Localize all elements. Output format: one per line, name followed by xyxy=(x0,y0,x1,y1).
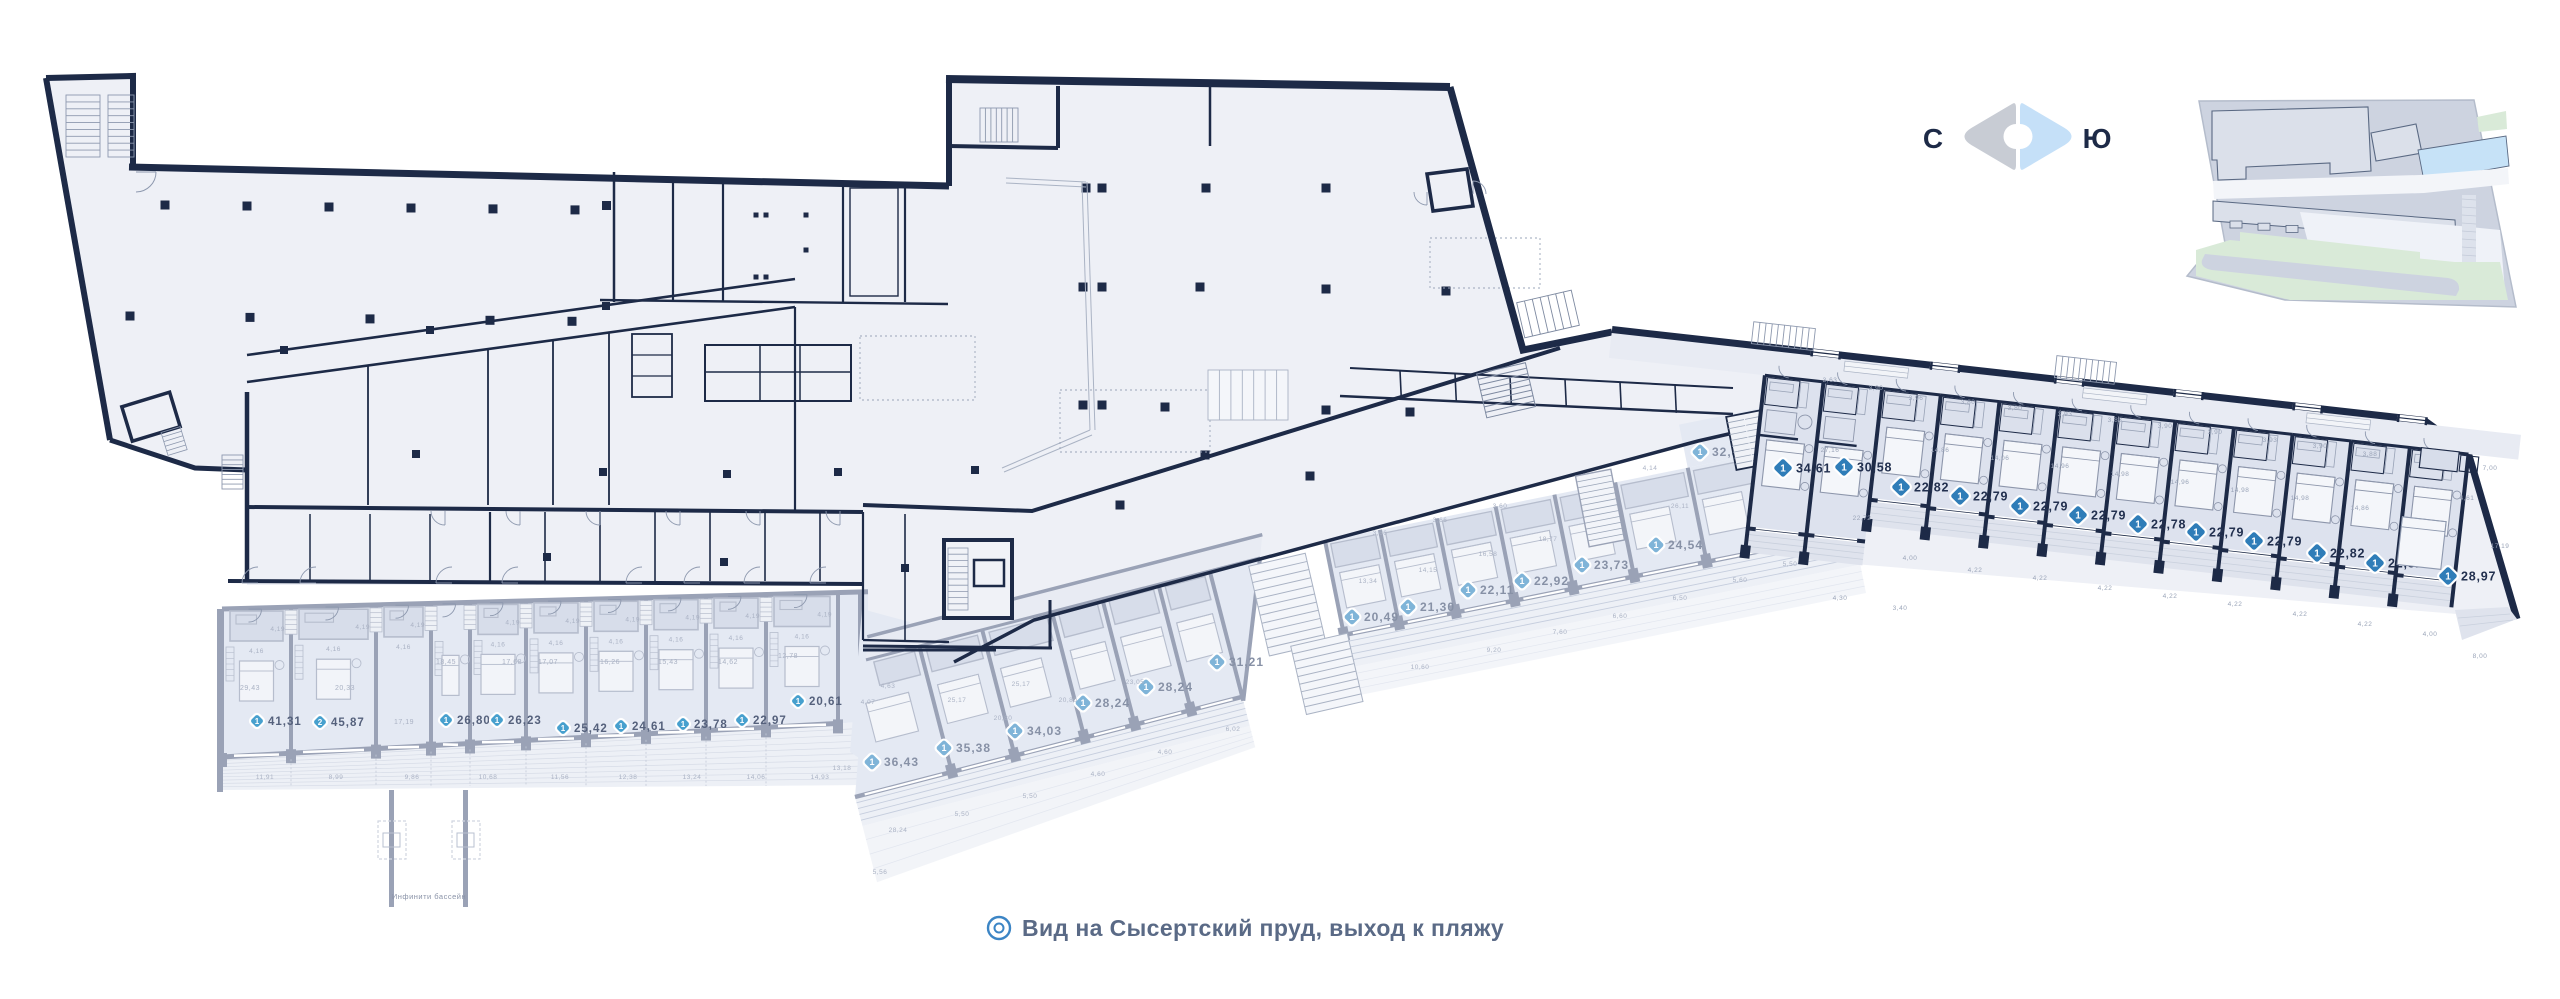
svg-text:3,90: 3,90 xyxy=(2208,429,2223,436)
svg-text:1: 1 xyxy=(2251,537,2257,548)
svg-text:8,00: 8,00 xyxy=(2473,653,2488,660)
svg-text:26,11: 26,11 xyxy=(1671,503,1689,510)
svg-text:14,06: 14,06 xyxy=(1991,455,2010,462)
svg-text:1: 1 xyxy=(2372,559,2378,570)
svg-text:31,21: 31,21 xyxy=(1229,655,1264,669)
svg-text:1: 1 xyxy=(1780,464,1786,475)
svg-text:4,22: 4,22 xyxy=(1968,567,1983,574)
svg-text:3,90: 3,90 xyxy=(1869,385,1884,392)
svg-text:4,00: 4,00 xyxy=(2423,631,2438,638)
svg-text:1: 1 xyxy=(2445,572,2451,583)
svg-text:1: 1 xyxy=(1898,483,1904,494)
svg-text:34,03: 34,03 xyxy=(1027,724,1062,738)
svg-text:14,96: 14,96 xyxy=(2051,463,2070,470)
svg-text:14,62: 14,62 xyxy=(718,659,738,666)
svg-text:1: 1 xyxy=(681,720,686,729)
svg-text:24,54: 24,54 xyxy=(1668,538,1703,552)
svg-text:29,43: 29,43 xyxy=(240,685,260,692)
svg-text:17,19: 17,19 xyxy=(2491,543,2510,550)
svg-text:4,61: 4,61 xyxy=(2460,495,2475,502)
svg-text:5,56: 5,56 xyxy=(873,869,888,876)
svg-text:4,60: 4,60 xyxy=(1091,771,1106,778)
svg-text:22,82: 22,82 xyxy=(1914,481,1949,495)
svg-text:4,19: 4,19 xyxy=(817,612,832,619)
svg-text:7,00: 7,00 xyxy=(2483,465,2498,472)
svg-text:3,66: 3,66 xyxy=(1373,530,1388,537)
svg-text:5,50: 5,50 xyxy=(1023,793,1038,800)
svg-text:4,60: 4,60 xyxy=(1158,749,1173,756)
svg-text:14,06: 14,06 xyxy=(747,774,766,781)
svg-text:36,43: 36,43 xyxy=(884,755,919,769)
svg-text:4,16: 4,16 xyxy=(396,644,411,651)
svg-text:17,68: 17,68 xyxy=(502,659,522,666)
svg-text:4,16: 4,16 xyxy=(795,634,810,641)
svg-text:3,90: 3,90 xyxy=(2313,443,2328,450)
svg-text:4,22: 4,22 xyxy=(2098,585,2113,592)
svg-text:3,90: 3,90 xyxy=(2158,423,2173,430)
svg-text:8,99: 8,99 xyxy=(329,774,344,781)
svg-text:21,30: 21,30 xyxy=(1420,600,1455,614)
svg-text:4,19: 4,19 xyxy=(625,616,640,623)
svg-text:4,19: 4,19 xyxy=(685,615,700,622)
svg-text:10,68: 10,68 xyxy=(479,774,498,781)
svg-text:1: 1 xyxy=(1697,447,1702,457)
svg-text:1: 1 xyxy=(255,717,260,726)
svg-text:22,72: 22,72 xyxy=(1853,515,1872,522)
svg-text:3,40: 3,40 xyxy=(1893,605,1908,612)
svg-text:35,38: 35,38 xyxy=(956,741,991,755)
svg-text:22,79: 22,79 xyxy=(2209,526,2244,540)
svg-text:4,22: 4,22 xyxy=(2033,575,2048,582)
svg-text:3,66: 3,66 xyxy=(1433,517,1448,524)
svg-text:16,26: 16,26 xyxy=(600,659,620,666)
svg-text:3,80: 3,80 xyxy=(2008,405,2023,412)
svg-text:3,96: 3,96 xyxy=(1909,395,1924,402)
svg-text:18,45: 18,45 xyxy=(436,659,456,666)
svg-text:10,60: 10,60 xyxy=(1411,664,1430,671)
svg-text:1: 1 xyxy=(619,722,624,731)
svg-text:22,11: 22,11 xyxy=(1480,583,1514,597)
svg-text:4,63: 4,63 xyxy=(881,683,896,690)
svg-text:1: 1 xyxy=(1957,492,1963,503)
svg-text:14,98: 14,98 xyxy=(2111,471,2130,478)
svg-text:С: С xyxy=(1923,123,1943,154)
svg-text:4,22: 4,22 xyxy=(2358,621,2373,628)
svg-text:4,16: 4,16 xyxy=(249,648,264,655)
svg-text:22,79: 22,79 xyxy=(2267,535,2302,549)
svg-text:26,23: 26,23 xyxy=(508,715,542,727)
svg-text:1: 1 xyxy=(2075,511,2081,522)
svg-text:4,19: 4,19 xyxy=(745,613,760,620)
svg-text:14,86: 14,86 xyxy=(1931,447,1950,454)
svg-text:Инфинити бассейн: Инфинити бассейн xyxy=(392,892,466,901)
svg-text:1: 1 xyxy=(796,697,801,706)
svg-text:4,00: 4,00 xyxy=(1903,555,1918,562)
svg-text:4,16: 4,16 xyxy=(609,638,624,645)
svg-text:30,58: 30,58 xyxy=(1857,461,1892,475)
svg-text:27,16: 27,16 xyxy=(1821,447,1840,454)
svg-text:26,80: 26,80 xyxy=(457,715,491,727)
svg-text:22,82: 22,82 xyxy=(2330,547,2365,561)
svg-text:20,33: 20,33 xyxy=(335,685,355,692)
svg-text:3,93: 3,93 xyxy=(2263,437,2278,444)
svg-text:4,19: 4,19 xyxy=(355,624,370,631)
svg-text:14,15: 14,15 xyxy=(1419,567,1438,574)
svg-text:45,87: 45,87 xyxy=(331,717,365,729)
svg-text:5,50: 5,50 xyxy=(955,811,970,818)
svg-text:14,98: 14,98 xyxy=(2231,487,2250,494)
svg-text:4,19: 4,19 xyxy=(505,619,520,626)
svg-text:12,78: 12,78 xyxy=(778,653,798,660)
svg-text:28,24: 28,24 xyxy=(1158,680,1193,694)
svg-text:34,61: 34,61 xyxy=(1796,462,1831,476)
svg-text:16,58: 16,58 xyxy=(1479,551,1498,558)
svg-text:2: 2 xyxy=(318,718,323,727)
svg-text:28,24: 28,24 xyxy=(889,827,908,834)
svg-text:4,14: 4,14 xyxy=(1643,465,1658,472)
svg-text:41,31: 41,31 xyxy=(268,716,302,728)
svg-text:28,24: 28,24 xyxy=(1095,696,1130,710)
svg-text:1: 1 xyxy=(2017,502,2023,513)
svg-text:3,60: 3,60 xyxy=(1493,503,1508,510)
svg-text:1: 1 xyxy=(1405,602,1410,612)
svg-text:1: 1 xyxy=(1214,657,1219,667)
svg-text:22,79: 22,79 xyxy=(2091,509,2126,523)
svg-text:1: 1 xyxy=(2193,528,2199,539)
svg-text:4,19: 4,19 xyxy=(410,622,425,629)
svg-text:7,60: 7,60 xyxy=(1553,629,1568,636)
svg-text:4,16: 4,16 xyxy=(326,646,341,653)
svg-text:1: 1 xyxy=(444,716,449,725)
svg-text:1: 1 xyxy=(1841,463,1847,474)
svg-text:24,61: 24,61 xyxy=(632,721,666,733)
svg-text:11,91: 11,91 xyxy=(256,774,274,781)
svg-text:15,43: 15,43 xyxy=(658,659,678,666)
svg-text:1: 1 xyxy=(941,743,946,753)
svg-text:14,86: 14,86 xyxy=(2351,505,2370,512)
svg-text:22,79: 22,79 xyxy=(1973,490,2008,504)
svg-text:1: 1 xyxy=(869,757,874,767)
svg-text:1: 1 xyxy=(495,716,500,725)
svg-text:3,93: 3,93 xyxy=(2058,411,2073,418)
svg-text:23,73: 23,73 xyxy=(1594,558,1629,572)
svg-text:20,80: 20,80 xyxy=(994,715,1013,722)
svg-text:20,80: 20,80 xyxy=(1059,697,1078,704)
svg-text:22,79: 22,79 xyxy=(2033,500,2068,514)
svg-text:4,19: 4,19 xyxy=(270,626,285,633)
svg-text:6,02: 6,02 xyxy=(1226,726,1241,733)
svg-text:1: 1 xyxy=(1080,698,1085,708)
svg-text:25,42: 25,42 xyxy=(574,723,608,735)
svg-text:20,49: 20,49 xyxy=(1364,610,1399,624)
svg-text:22,97: 22,97 xyxy=(753,715,787,727)
svg-text:3,63: 3,63 xyxy=(1823,377,1838,384)
svg-text:1: 1 xyxy=(1519,576,1524,586)
svg-text:4,30: 4,30 xyxy=(1833,595,1848,602)
svg-text:9,20: 9,20 xyxy=(1487,647,1502,654)
svg-text:Вид на Сысертский пруд, выход: Вид на Сысертский пруд, выход к пляжу xyxy=(1022,915,1504,941)
svg-text:4,22: 4,22 xyxy=(2163,593,2178,600)
svg-text:11,56: 11,56 xyxy=(551,774,569,781)
svg-text:6,50: 6,50 xyxy=(1673,595,1688,602)
svg-text:1: 1 xyxy=(1465,585,1470,595)
svg-text:Ю: Ю xyxy=(2083,123,2112,154)
svg-text:1: 1 xyxy=(1012,726,1017,736)
svg-text:12,38: 12,38 xyxy=(619,774,638,781)
svg-text:5,50: 5,50 xyxy=(1783,561,1798,568)
svg-text:6,60: 6,60 xyxy=(1613,613,1628,620)
svg-text:13,34: 13,34 xyxy=(1359,578,1378,585)
svg-text:3,88: 3,88 xyxy=(2363,451,2378,458)
svg-text:22,92: 22,92 xyxy=(1534,574,1569,588)
svg-text:4,22: 4,22 xyxy=(2228,601,2243,608)
svg-text:5,60: 5,60 xyxy=(1733,577,1748,584)
svg-text:4,22: 4,22 xyxy=(2293,611,2308,618)
svg-text:4,16: 4,16 xyxy=(669,637,684,644)
svg-text:4,16: 4,16 xyxy=(491,641,506,648)
svg-text:4,16: 4,16 xyxy=(729,635,744,642)
svg-text:25,17: 25,17 xyxy=(948,697,967,704)
svg-text:17,07: 17,07 xyxy=(538,659,558,666)
svg-text:23,05: 23,05 xyxy=(1126,679,1145,686)
svg-text:9,86: 9,86 xyxy=(405,774,420,781)
svg-text:1: 1 xyxy=(1349,612,1354,622)
svg-text:1: 1 xyxy=(1653,540,1658,550)
svg-text:1: 1 xyxy=(2135,520,2141,531)
svg-text:4,16: 4,16 xyxy=(549,640,564,647)
svg-text:23,78: 23,78 xyxy=(694,719,728,731)
svg-text:25,17: 25,17 xyxy=(1012,681,1031,688)
svg-text:18,77: 18,77 xyxy=(1539,536,1558,543)
svg-text:3,83: 3,83 xyxy=(2108,417,2123,424)
svg-text:14,98: 14,98 xyxy=(2291,495,2310,502)
svg-text:14,93: 14,93 xyxy=(811,774,830,781)
svg-text:4,07: 4,07 xyxy=(861,699,876,706)
svg-text:1: 1 xyxy=(561,724,566,733)
svg-text:4,19: 4,19 xyxy=(565,618,580,625)
svg-text:17,19: 17,19 xyxy=(394,719,414,726)
svg-text:1: 1 xyxy=(740,716,745,725)
svg-text:20,61: 20,61 xyxy=(809,696,843,708)
svg-text:28,97: 28,97 xyxy=(2461,570,2496,584)
svg-text:1: 1 xyxy=(1579,560,1584,570)
svg-text:14,96: 14,96 xyxy=(2171,479,2190,486)
svg-text:3,80: 3,80 xyxy=(1961,399,1976,406)
svg-text:1: 1 xyxy=(2314,549,2320,560)
svg-text:13,24: 13,24 xyxy=(683,774,702,781)
svg-text:22,78: 22,78 xyxy=(2151,518,2186,532)
svg-text:13,18: 13,18 xyxy=(833,765,852,772)
